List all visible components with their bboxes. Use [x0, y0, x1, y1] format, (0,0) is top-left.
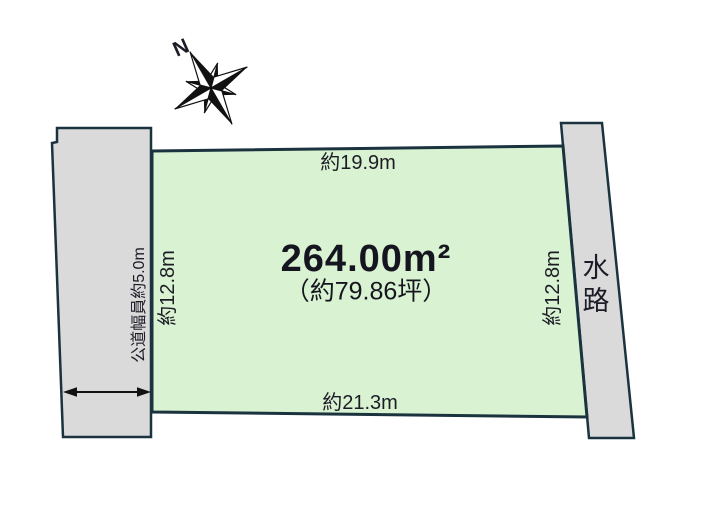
- plot-area-tsubo-label: （約79.86坪）: [285, 280, 448, 305]
- plot-top-dimension: 約19.9m: [320, 153, 396, 173]
- plot-right-dimension: 約12.8m: [543, 250, 563, 326]
- waterway-label: 水路: [580, 253, 607, 319]
- compass-rose-icon: [154, 31, 269, 146]
- plot-area-label: 264.00m²: [281, 240, 452, 278]
- road-width-label: 公道幅員約5.0m: [132, 247, 148, 363]
- plot-bottom-dimension: 約21.3m: [322, 393, 398, 413]
- plot-left-dimension: 約12.8m: [158, 250, 178, 326]
- site-plan-diagram: N 約19.9m 約21.3m 約12.8m 約12.8m 264.00m² （…: [0, 0, 720, 510]
